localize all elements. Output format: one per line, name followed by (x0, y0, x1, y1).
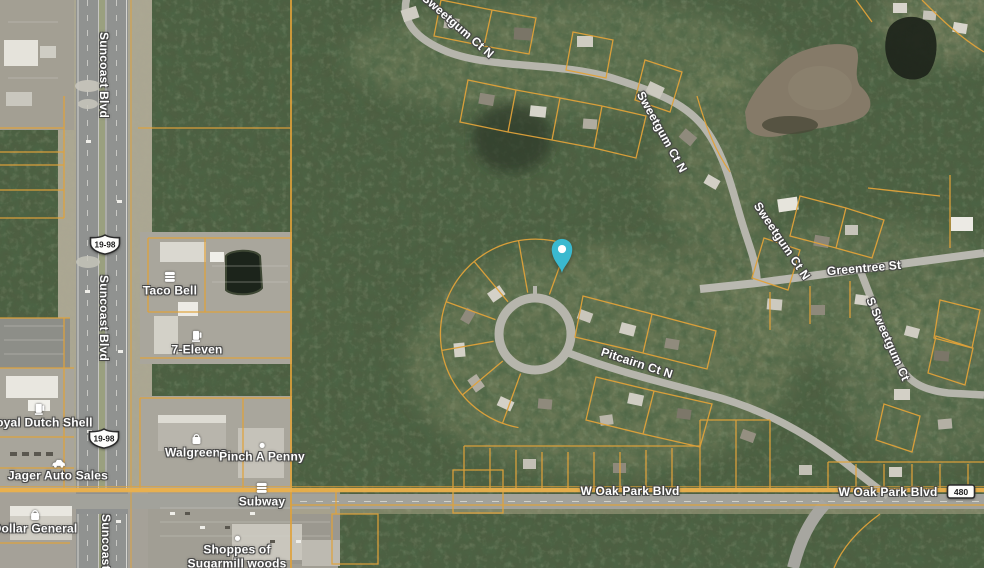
poi-seven-eleven[interactable]: 7-Eleven (172, 329, 223, 356)
map-pin[interactable] (548, 238, 576, 279)
poi-subway[interactable]: Subway (239, 481, 286, 508)
poi-label-text: Walgreens (165, 446, 227, 459)
poi-label-text: 7-Eleven (172, 343, 223, 356)
restaurant-icon (255, 481, 269, 494)
restaurant-icon (163, 270, 177, 283)
satellite-map[interactable]: Suncoast Blvd Suncoast Blvd Suncoast Blv… (0, 0, 984, 568)
svg-text:19-98: 19-98 (94, 434, 115, 443)
poi-label-text: Jager Auto Sales (8, 469, 108, 482)
poi-label-text: Subway (239, 495, 286, 508)
svg-text:480: 480 (954, 487, 969, 497)
poi-walgreens[interactable]: Walgreens (165, 432, 227, 459)
poi-jager-auto-sales[interactable]: Jager Auto Sales (8, 455, 108, 482)
poi-label-text-line2: Sugarmill woods (187, 558, 286, 568)
pin-center-dot (558, 245, 566, 253)
poi-label-text-line1: Shoppes of (203, 543, 270, 556)
svg-text:19-98: 19-98 (95, 240, 116, 249)
fuel-pump-icon (191, 329, 204, 342)
poi-label-text: Pinch A Penny (219, 450, 305, 463)
poi-dot-icon (258, 436, 266, 449)
poi-shoppes-of-sugarmill-woods[interactable]: Shoppes of Sugarmill woods (187, 529, 286, 568)
fuel-pump-icon (33, 402, 46, 415)
shopping-bag-icon (29, 508, 42, 521)
poi-label-text: Royal Dutch Shell (0, 416, 93, 429)
car-icon (50, 455, 65, 468)
pond-ne (885, 17, 936, 80)
shopping-bag-icon (189, 432, 202, 445)
pin-body (552, 239, 572, 273)
poi-pinch-a-penny[interactable]: Pinch A Penny (219, 436, 305, 463)
us-route-shield-19-98-north: 19-98 (87, 234, 123, 261)
county-road-shield-480: 480 (946, 484, 976, 505)
poi-royal-dutch-shell[interactable]: Royal Dutch Shell (0, 402, 93, 429)
us-route-shield-19-98-south: 19-98 (86, 428, 122, 455)
pond-taco-bell (226, 251, 262, 295)
poi-dot-icon (233, 529, 241, 542)
poi-taco-bell[interactable]: Taco Bell (143, 270, 197, 297)
poi-dollar-general[interactable]: Dollar General (0, 508, 77, 535)
poi-label-text: Dollar General (0, 522, 77, 535)
poi-label-text: Taco Bell (143, 284, 197, 297)
